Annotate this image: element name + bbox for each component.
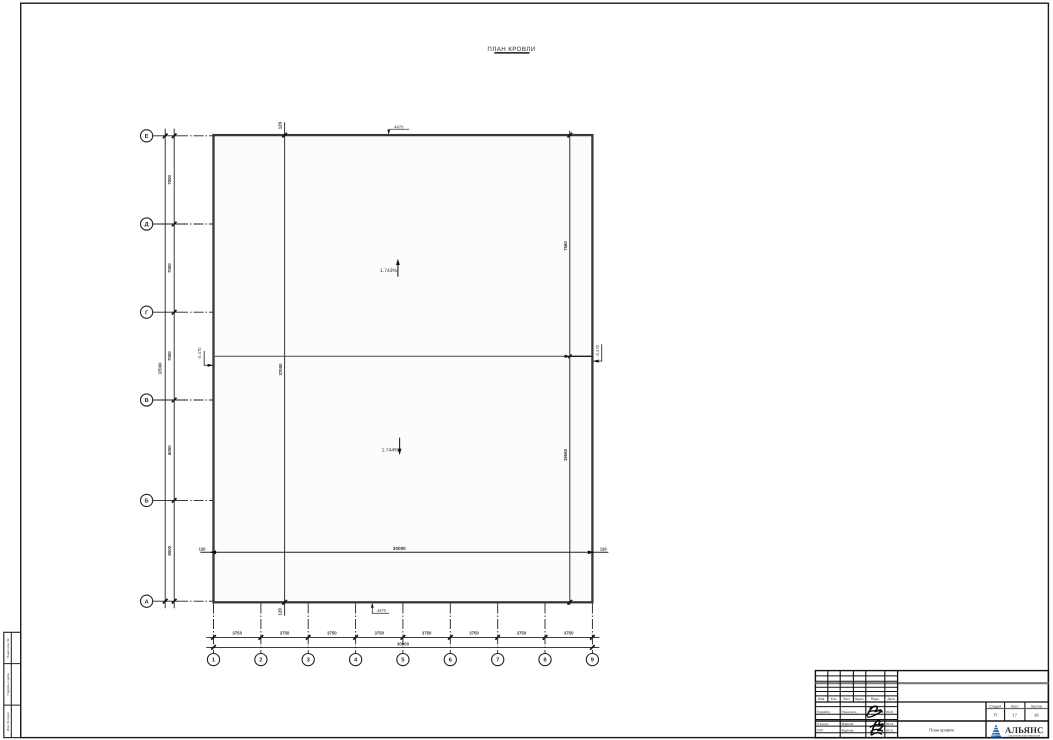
svg-text:18: 18	[1034, 713, 1039, 718]
svg-text:1.743%: 1.743%	[380, 268, 398, 274]
svg-text:7: 7	[496, 658, 499, 664]
svg-text:3750: 3750	[517, 631, 527, 636]
svg-text:30000: 30000	[397, 641, 410, 646]
svg-text:120: 120	[600, 546, 608, 551]
svg-text:№док.: №док.	[855, 697, 865, 701]
svg-text:3750: 3750	[375, 631, 385, 636]
svg-text:120: 120	[278, 121, 283, 129]
svg-text:30000: 30000	[393, 546, 406, 551]
svg-text:09.21: 09.21	[886, 722, 894, 726]
svg-text:Разработ.: Разработ.	[817, 710, 831, 714]
svg-text:Лист: Лист	[843, 697, 851, 701]
svg-text:Жданов: Жданов	[842, 729, 854, 733]
svg-text:4470: 4470	[394, 124, 404, 129]
svg-text:09.21: 09.21	[886, 729, 894, 733]
svg-text:Кол.: Кол.	[831, 697, 838, 701]
svg-text:37000: 37000	[278, 363, 283, 376]
svg-text:17: 17	[1012, 713, 1017, 718]
svg-text:8000: 8000	[167, 545, 172, 555]
svg-text:Лист: Лист	[1011, 704, 1019, 708]
svg-text:Решетило: Решетило	[842, 710, 857, 714]
svg-text:120: 120	[278, 608, 283, 616]
svg-text:-0.470: -0.470	[595, 344, 600, 357]
svg-text:3750: 3750	[422, 631, 432, 636]
svg-text:Подп.: Подп.	[871, 697, 880, 701]
svg-text:3750: 3750	[327, 631, 337, 636]
svg-text:4470: 4470	[377, 608, 387, 613]
svg-text:Е: Е	[145, 134, 149, 140]
svg-text:В: В	[145, 398, 149, 404]
svg-text:Инв. № подл.: Инв. № подл.	[6, 712, 10, 731]
svg-text:2: 2	[259, 657, 262, 664]
svg-text:09.21: 09.21	[886, 710, 894, 714]
svg-text:3750: 3750	[280, 631, 290, 636]
svg-text:8000: 8000	[167, 445, 172, 455]
svg-text:строительная компания: строительная компания	[1008, 734, 1040, 737]
svg-text:7000: 7000	[167, 175, 172, 185]
svg-text:120: 120	[199, 546, 207, 551]
svg-text:Подпись и дата: Подпись и дата	[6, 673, 10, 696]
svg-text:Взам. инв. №: Взам. инв. №	[6, 638, 10, 658]
svg-text:7000: 7000	[167, 263, 172, 273]
svg-text:Б: Б	[145, 499, 149, 505]
svg-text:3750: 3750	[232, 631, 242, 636]
svg-text:Изм.: Изм.	[818, 697, 825, 701]
svg-text:7000: 7000	[167, 351, 172, 361]
svg-text:19560: 19560	[563, 448, 568, 461]
svg-text:-0.470: -0.470	[197, 347, 202, 360]
svg-text:Дата: Дата	[887, 697, 895, 701]
svg-text:3750: 3750	[469, 631, 479, 636]
svg-text:1.744%: 1.744%	[382, 447, 400, 453]
svg-text:ПЛАН КРОВЛИ: ПЛАН КРОВЛИ	[487, 46, 535, 53]
svg-text:7560: 7560	[563, 241, 568, 251]
svg-text:Стадия: Стадия	[989, 704, 1001, 708]
svg-text:П: П	[994, 713, 997, 718]
svg-text:3750: 3750	[564, 631, 574, 636]
svg-text:Листов: Листов	[1031, 704, 1043, 708]
svg-text:ГИП: ГИП	[817, 729, 824, 733]
svg-text:Н.контр.: Н.контр.	[817, 722, 829, 726]
svg-text:План кровли: План кровли	[929, 727, 954, 732]
svg-text:Жданов: Жданов	[842, 722, 854, 726]
svg-text:37000: 37000	[158, 362, 163, 375]
